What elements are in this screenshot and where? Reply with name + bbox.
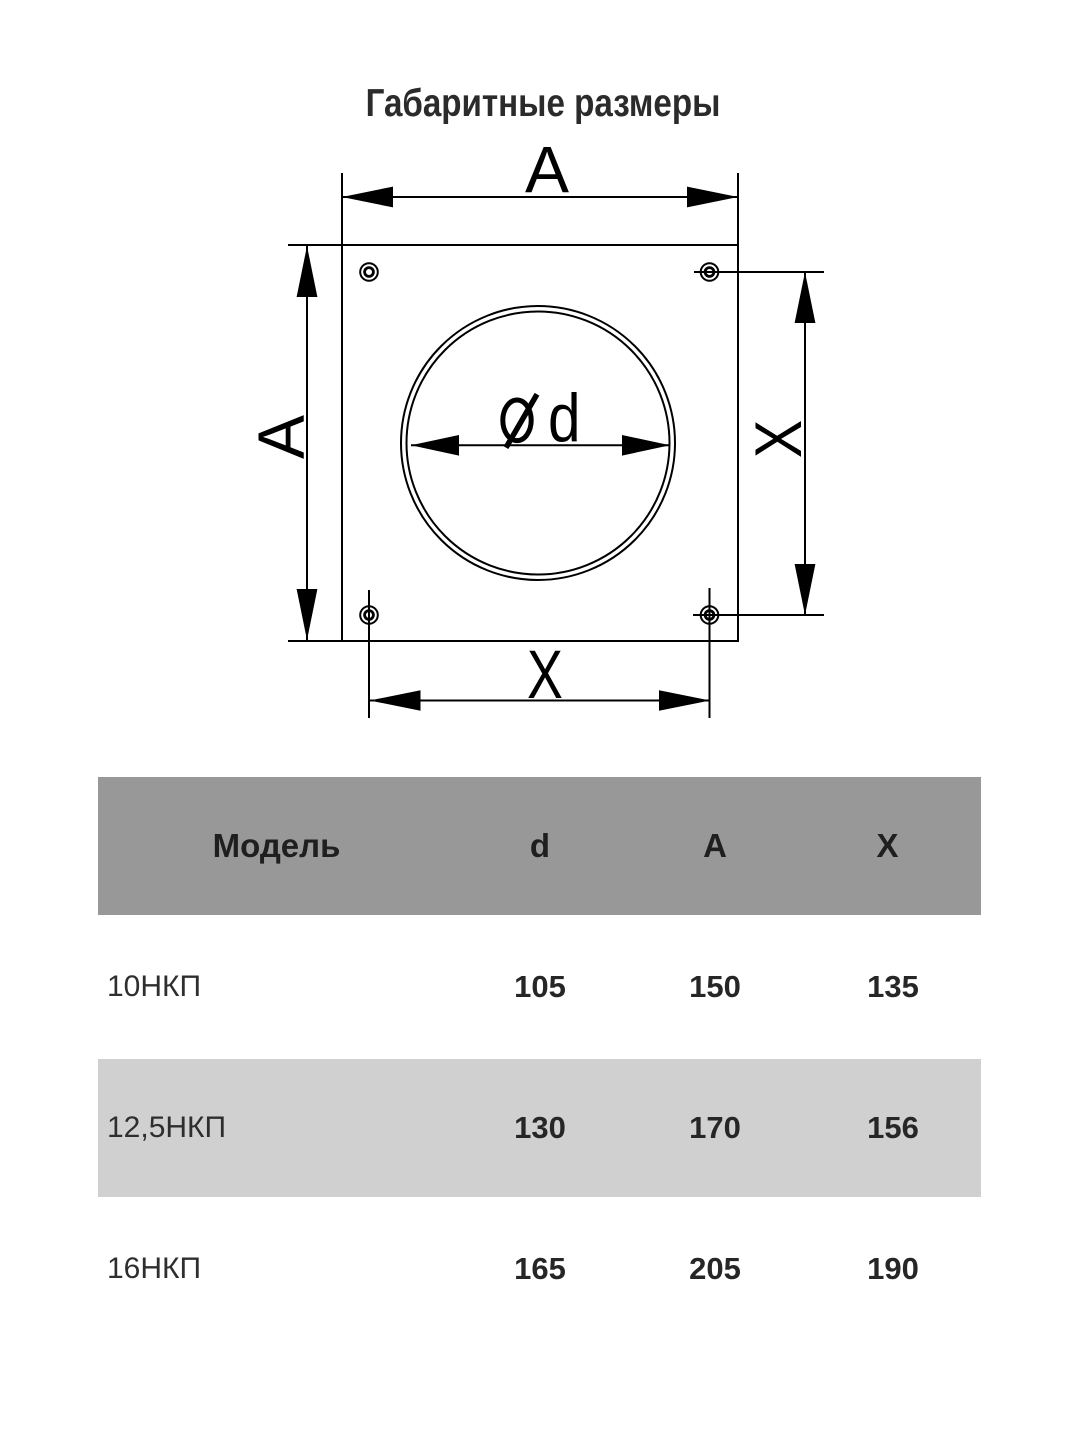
svg-text:A: A <box>244 415 318 459</box>
svg-text:A: A <box>525 133 569 207</box>
svg-text:X: X <box>742 420 816 458</box>
svg-text:d: d <box>548 381 581 456</box>
svg-text:X: X <box>527 637 563 714</box>
